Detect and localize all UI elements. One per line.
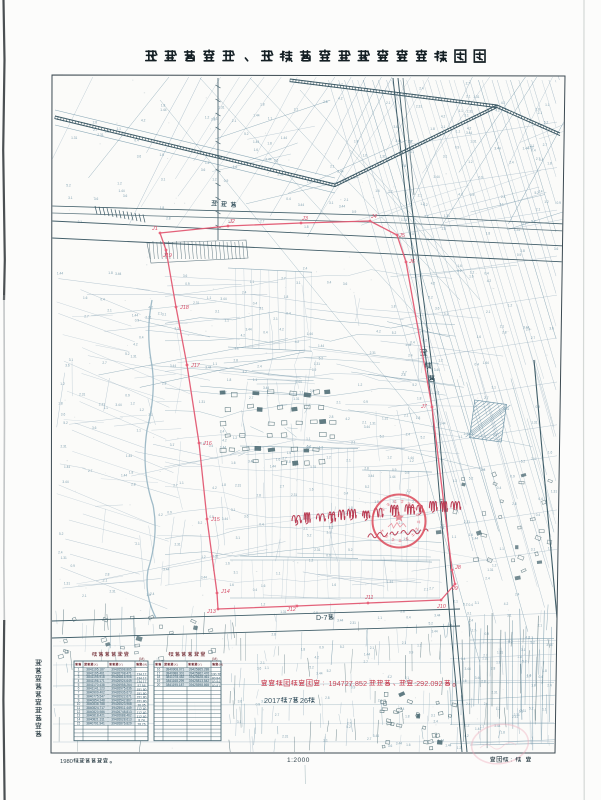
svg-text:J4: J4 — [370, 214, 377, 220]
svg-text:2.1: 2.1 — [232, 119, 237, 123]
svg-text:1.44: 1.44 — [126, 454, 132, 458]
svg-text:0.4: 0.4 — [253, 588, 258, 592]
svg-text:1.6: 1.6 — [230, 583, 235, 587]
svg-text:3.44: 3.44 — [163, 568, 169, 572]
svg-text:0.9: 0.9 — [312, 368, 317, 372]
svg-text:1.2: 1.2 — [201, 555, 206, 559]
svg-text:3.1: 3.1 — [431, 713, 436, 717]
svg-text:2.4: 2.4 — [58, 550, 63, 554]
svg-text:2.4: 2.4 — [408, 354, 413, 358]
svg-text:3840791.941: 3840791.941 — [86, 721, 105, 725]
svg-text:(X): (X) — [174, 663, 178, 667]
svg-text:2.31: 2.31 — [291, 493, 297, 497]
svg-text:2.31: 2.31 — [491, 690, 497, 694]
svg-text:2.1: 2.1 — [82, 594, 87, 598]
svg-text:5.2: 5.2 — [59, 532, 64, 536]
svg-text:1.2: 1.2 — [326, 455, 331, 459]
svg-text:2017: 2017 — [264, 696, 280, 705]
svg-text:5.2: 5.2 — [125, 352, 130, 356]
svg-text:3.44: 3.44 — [432, 630, 438, 634]
svg-text:1980: 1980 — [60, 759, 73, 765]
svg-text:J11: J11 — [364, 595, 373, 601]
svg-text:4.2: 4.2 — [338, 96, 343, 100]
svg-text:J7: J7 — [420, 404, 428, 410]
svg-text:2.8: 2.8 — [131, 482, 136, 486]
svg-text:2.1: 2.1 — [351, 441, 356, 445]
svg-text:2.7: 2.7 — [275, 713, 280, 717]
svg-text:5.2: 5.2 — [469, 477, 474, 481]
svg-text:1.1: 1.1 — [417, 644, 422, 648]
svg-text:2.7: 2.7 — [249, 396, 254, 400]
svg-text:3.6: 3.6 — [549, 326, 554, 330]
svg-text:1.44: 1.44 — [281, 136, 287, 140]
svg-text:3.44: 3.44 — [434, 368, 440, 372]
svg-text:1.44: 1.44 — [445, 744, 451, 748]
svg-text:1.6: 1.6 — [469, 274, 474, 278]
svg-text:1.8: 1.8 — [416, 416, 421, 420]
svg-text:2.31: 2.31 — [314, 548, 320, 552]
svg-text:0.4: 0.4 — [286, 197, 291, 201]
svg-text:1.31: 1.31 — [487, 568, 493, 572]
svg-text:3.44: 3.44 — [373, 734, 379, 738]
svg-text:1.31: 1.31 — [131, 354, 137, 358]
svg-text:5.2: 5.2 — [463, 603, 468, 607]
svg-text:4.2: 4.2 — [279, 328, 284, 332]
svg-text:3.44: 3.44 — [115, 272, 121, 276]
svg-text:3.1: 3.1 — [329, 201, 334, 205]
svg-text:(M): (M) — [212, 657, 217, 661]
svg-text:1.2: 1.2 — [117, 182, 122, 186]
svg-text:5.2: 5.2 — [346, 725, 351, 729]
svg-text:0.9: 0.9 — [256, 703, 261, 707]
svg-text:0.9: 0.9 — [479, 175, 484, 179]
svg-text:1.8: 1.8 — [161, 103, 166, 107]
svg-text:J1: J1 — [151, 226, 158, 232]
svg-text:1.8: 1.8 — [501, 731, 506, 735]
svg-text:2.7: 2.7 — [543, 143, 548, 147]
svg-text:0.9: 0.9 — [135, 318, 140, 322]
svg-text:1.31: 1.31 — [497, 651, 503, 655]
svg-text:(M): (M) — [143, 663, 148, 667]
svg-text:5.2: 5.2 — [327, 669, 332, 673]
svg-text:0.9: 0.9 — [557, 201, 562, 205]
svg-text:4.2: 4.2 — [141, 118, 146, 122]
svg-text:2.4: 2.4 — [515, 593, 520, 597]
svg-text:5.2: 5.2 — [530, 640, 535, 644]
svg-text:3.44: 3.44 — [246, 327, 252, 331]
svg-text:5.2: 5.2 — [531, 220, 536, 224]
svg-text:3.6: 3.6 — [257, 666, 262, 670]
svg-text:2.7: 2.7 — [282, 456, 287, 460]
svg-text:2.31: 2.31 — [110, 589, 116, 593]
svg-text:1.44: 1.44 — [220, 446, 226, 450]
svg-text:1.31: 1.31 — [218, 105, 224, 109]
svg-text:1.1: 1.1 — [253, 378, 258, 382]
svg-text:2.1: 2.1 — [303, 527, 308, 531]
svg-text:2.31: 2.31 — [145, 316, 151, 320]
svg-text:1.1: 1.1 — [265, 666, 270, 670]
svg-text:3.1: 3.1 — [161, 177, 166, 181]
svg-text:2.1: 2.1 — [135, 542, 140, 546]
svg-text:2.31: 2.31 — [79, 393, 85, 397]
svg-text:1.44: 1.44 — [439, 421, 445, 425]
svg-text:2.7: 2.7 — [466, 82, 471, 86]
svg-text:15: 15 — [77, 721, 81, 725]
svg-text:3.6: 3.6 — [394, 125, 399, 129]
svg-text:1.44: 1.44 — [405, 343, 411, 347]
svg-text:1.44: 1.44 — [523, 147, 529, 151]
svg-text:0.9: 0.9 — [364, 400, 369, 404]
svg-text:(Y): (Y) — [198, 663, 202, 667]
svg-text:1.8: 1.8 — [430, 127, 435, 131]
svg-text:5.2: 5.2 — [198, 521, 203, 525]
svg-text:2.7: 2.7 — [472, 629, 477, 633]
svg-text:2.7: 2.7 — [280, 484, 285, 488]
svg-text:3.6: 3.6 — [137, 155, 142, 159]
svg-text:3.6: 3.6 — [183, 274, 188, 278]
svg-text:1.44: 1.44 — [132, 313, 138, 317]
svg-text:3.6: 3.6 — [388, 744, 393, 748]
svg-text:1.1: 1.1 — [213, 362, 218, 366]
svg-text:3.44: 3.44 — [368, 474, 374, 478]
svg-text:2.1: 2.1 — [441, 125, 446, 129]
svg-text:3.44: 3.44 — [248, 460, 254, 464]
svg-text:3.44: 3.44 — [222, 517, 228, 521]
svg-text:2.7: 2.7 — [364, 660, 369, 664]
svg-text:0.9: 0.9 — [125, 393, 130, 397]
svg-text:3.44: 3.44 — [205, 365, 211, 369]
svg-text:1.44: 1.44 — [253, 140, 259, 144]
svg-text:1.2: 1.2 — [424, 215, 429, 219]
svg-text:1.1: 1.1 — [306, 437, 311, 441]
svg-text:J19: J19 — [162, 253, 172, 259]
svg-text:1.6: 1.6 — [548, 451, 553, 455]
svg-text:J10: J10 — [436, 604, 447, 610]
svg-text:3.1: 3.1 — [236, 536, 241, 540]
svg-text:2.8: 2.8 — [502, 331, 507, 335]
svg-text:1.1: 1.1 — [207, 296, 212, 300]
svg-text:1.6: 1.6 — [225, 562, 230, 566]
svg-text:3.44: 3.44 — [337, 619, 343, 623]
svg-text:1.44: 1.44 — [364, 653, 370, 657]
svg-text:7: 7 — [288, 696, 292, 705]
svg-text:0.9: 0.9 — [224, 179, 229, 183]
svg-text:1.8: 1.8 — [108, 271, 113, 275]
svg-text:0.4: 0.4 — [286, 312, 291, 316]
svg-text:1.31: 1.31 — [280, 610, 286, 614]
svg-text:J15: J15 — [210, 517, 221, 523]
svg-text:2.1: 2.1 — [103, 578, 108, 582]
svg-text:5.2: 5.2 — [66, 183, 71, 187]
svg-text:2.1: 2.1 — [273, 317, 278, 321]
svg-text:1.8: 1.8 — [58, 402, 63, 406]
svg-text:2.4: 2.4 — [466, 702, 471, 706]
svg-text:4.2: 4.2 — [158, 513, 163, 517]
svg-text:3.44: 3.44 — [298, 203, 304, 207]
svg-text:1.8: 1.8 — [441, 227, 446, 231]
svg-text:2.1: 2.1 — [386, 101, 391, 105]
svg-text:1.8: 1.8 — [547, 162, 552, 166]
svg-text:3.1: 3.1 — [323, 739, 328, 743]
svg-text:1.2: 1.2 — [508, 303, 513, 307]
svg-text:1.1: 1.1 — [299, 390, 304, 394]
svg-text:2.7: 2.7 — [84, 315, 89, 319]
svg-text:3.1: 3.1 — [443, 154, 448, 158]
svg-text:1.1: 1.1 — [456, 130, 461, 134]
svg-text:3.6: 3.6 — [123, 194, 128, 198]
svg-text:1.8: 1.8 — [301, 647, 306, 651]
svg-text:1.8: 1.8 — [284, 295, 289, 299]
svg-text:2.8: 2.8 — [257, 494, 262, 498]
svg-text:0.9: 0.9 — [517, 253, 522, 257]
svg-text:4.2: 4.2 — [504, 602, 509, 606]
svg-text:1.2: 1.2 — [457, 746, 462, 750]
svg-text:1.2: 1.2 — [212, 177, 217, 181]
svg-text:2.8: 2.8 — [325, 696, 330, 700]
svg-text:1.6: 1.6 — [231, 461, 236, 465]
svg-text:3.44: 3.44 — [546, 643, 552, 647]
svg-text:2.8: 2.8 — [166, 216, 171, 220]
svg-text:(X): (X) — [94, 663, 98, 667]
svg-text:2.1: 2.1 — [213, 117, 218, 121]
svg-text:0.4: 0.4 — [531, 148, 536, 152]
svg-text:3.1: 3.1 — [215, 310, 220, 314]
svg-text:1.2: 1.2 — [468, 160, 473, 164]
svg-text:J14: J14 — [220, 589, 230, 595]
svg-text:1.8: 1.8 — [496, 660, 501, 664]
svg-text:2.1: 2.1 — [536, 207, 541, 211]
svg-text:(M): (M) — [219, 663, 224, 667]
svg-text:1.44: 1.44 — [64, 465, 70, 469]
svg-text:(M): (M) — [139, 657, 144, 661]
svg-text:1.1: 1.1 — [276, 572, 281, 576]
svg-text:1.44: 1.44 — [318, 344, 324, 348]
svg-text:0.4: 0.4 — [484, 272, 489, 276]
svg-text:2.4: 2.4 — [434, 720, 439, 724]
svg-text:2.8: 2.8 — [162, 382, 167, 386]
svg-text:1.31: 1.31 — [71, 136, 77, 140]
svg-text:D-7: D-7 — [316, 614, 327, 622]
svg-text:J17: J17 — [190, 363, 201, 369]
svg-text:0.9: 0.9 — [185, 282, 190, 286]
svg-text:2.8: 2.8 — [329, 415, 334, 419]
svg-text:3.44: 3.44 — [364, 425, 370, 429]
svg-text:0.4: 0.4 — [497, 486, 502, 490]
svg-text:80.81: 80.81 — [212, 684, 220, 688]
svg-text:2.7: 2.7 — [536, 157, 541, 161]
svg-text:5.2: 5.2 — [421, 436, 426, 440]
svg-text:0.4: 0.4 — [536, 513, 541, 517]
svg-text:3841195.187: 3841195.187 — [166, 683, 185, 687]
svg-text:1.1: 1.1 — [458, 435, 463, 439]
svg-text:2.8: 2.8 — [491, 667, 496, 671]
svg-text:2.8: 2.8 — [234, 358, 239, 362]
svg-text:2.8: 2.8 — [272, 632, 277, 636]
svg-text:2.7: 2.7 — [102, 361, 107, 365]
svg-text:1.44: 1.44 — [307, 332, 313, 336]
svg-text:2.31: 2.31 — [520, 709, 526, 713]
svg-text:2.1: 2.1 — [538, 111, 543, 115]
svg-text:1.6: 1.6 — [160, 153, 165, 157]
svg-text:1.31: 1.31 — [61, 556, 67, 560]
svg-text:4.2: 4.2 — [212, 486, 217, 490]
svg-text:1.6: 1.6 — [83, 296, 88, 300]
svg-text:1.1: 1.1 — [459, 109, 464, 113]
svg-text:2.1: 2.1 — [454, 600, 459, 604]
svg-text:3.44: 3.44 — [263, 386, 269, 390]
svg-text:2.1: 2.1 — [107, 308, 112, 312]
svg-text:0.4: 0.4 — [539, 675, 544, 679]
svg-text:1.8: 1.8 — [267, 141, 272, 145]
svg-text:0.9: 0.9 — [167, 510, 172, 514]
svg-text:2.1: 2.1 — [294, 108, 299, 112]
svg-text:0.9: 0.9 — [470, 193, 475, 197]
svg-text:2.1: 2.1 — [362, 420, 367, 424]
svg-text:4.2: 4.2 — [133, 342, 138, 346]
svg-text:3.1: 3.1 — [327, 530, 332, 534]
svg-text:0.9: 0.9 — [409, 650, 414, 654]
svg-text:4.2: 4.2 — [295, 340, 300, 344]
svg-text:2.8: 2.8 — [401, 373, 406, 377]
svg-text:2.8: 2.8 — [481, 679, 486, 683]
svg-text:1.2: 1.2 — [358, 383, 363, 387]
svg-text:1.44: 1.44 — [472, 537, 478, 541]
svg-text:2.31: 2.31 — [350, 621, 356, 625]
svg-text:2.7: 2.7 — [173, 484, 178, 488]
svg-text:4.2: 4.2 — [501, 101, 506, 105]
svg-text:2.8: 2.8 — [323, 100, 328, 104]
svg-text:3.44: 3.44 — [434, 614, 440, 618]
svg-text:4.2: 4.2 — [464, 734, 469, 738]
svg-text:1.1: 1.1 — [545, 103, 550, 107]
svg-text:2.4: 2.4 — [501, 195, 506, 199]
svg-text:1.31: 1.31 — [401, 218, 407, 222]
svg-text:3.6: 3.6 — [94, 197, 99, 201]
svg-text:1.1: 1.1 — [250, 280, 255, 284]
svg-text:2.4: 2.4 — [469, 618, 474, 622]
svg-text:3.44: 3.44 — [115, 403, 121, 407]
svg-text:3.6: 3.6 — [65, 363, 70, 367]
svg-text:1.8: 1.8 — [531, 684, 536, 688]
svg-text:4.2: 4.2 — [222, 438, 227, 442]
svg-text:1.2: 1.2 — [233, 436, 238, 440]
svg-text:26: 26 — [300, 696, 308, 705]
svg-text:1.2: 1.2 — [492, 564, 497, 568]
svg-text:3.1: 3.1 — [467, 611, 472, 615]
svg-text:2.7: 2.7 — [429, 586, 434, 590]
svg-text:0.9: 0.9 — [319, 645, 324, 649]
svg-text:1.2: 1.2 — [438, 358, 443, 362]
svg-text:1.6: 1.6 — [332, 583, 337, 587]
svg-text:5.2: 5.2 — [508, 640, 513, 644]
svg-text:2.1: 2.1 — [405, 676, 410, 680]
svg-text:1.2: 1.2 — [387, 455, 392, 459]
svg-text:1.1: 1.1 — [117, 127, 122, 131]
svg-text:5.2: 5.2 — [412, 383, 417, 387]
svg-text:1.31: 1.31 — [551, 490, 557, 494]
svg-text:3.6: 3.6 — [274, 159, 279, 163]
svg-text:1.31: 1.31 — [314, 362, 320, 366]
svg-text:2.31: 2.31 — [212, 554, 218, 558]
svg-text:3.44: 3.44 — [316, 671, 322, 675]
svg-text:0.4: 0.4 — [327, 280, 332, 284]
svg-text:5.2: 5.2 — [380, 435, 385, 439]
svg-text:1.8: 1.8 — [227, 378, 232, 382]
svg-text:3.1: 3.1 — [69, 358, 74, 362]
svg-text:3.1: 3.1 — [237, 720, 242, 724]
svg-text:1.44: 1.44 — [408, 456, 414, 460]
svg-text:2.1: 2.1 — [466, 95, 471, 99]
svg-text:5.2: 5.2 — [529, 707, 534, 711]
svg-text:1.8: 1.8 — [304, 225, 309, 229]
svg-text:0.4: 0.4 — [139, 336, 144, 340]
svg-text:3.44: 3.44 — [265, 157, 271, 161]
svg-text:1.8: 1.8 — [222, 483, 227, 487]
svg-text:1.2: 1.2 — [453, 479, 458, 483]
svg-text:2.31: 2.31 — [282, 735, 288, 739]
svg-text:0.9: 0.9 — [510, 475, 515, 479]
svg-text:0.9: 0.9 — [326, 554, 331, 558]
svg-text:2.7: 2.7 — [367, 737, 372, 741]
svg-text:20: 20 — [157, 683, 161, 687]
svg-text:3.1: 3.1 — [162, 313, 167, 317]
svg-text:2.7: 2.7 — [347, 721, 352, 725]
svg-text:1.31: 1.31 — [199, 400, 205, 404]
svg-text:0.4: 0.4 — [475, 362, 480, 366]
svg-text:1.6: 1.6 — [276, 457, 281, 461]
svg-text:5.2: 5.2 — [309, 666, 314, 670]
svg-text:2.31: 2.31 — [193, 301, 199, 305]
svg-text:2.4: 2.4 — [220, 429, 225, 433]
svg-text:3.1: 3.1 — [531, 548, 536, 552]
svg-text:3.44: 3.44 — [396, 741, 402, 745]
svg-text:2.1: 2.1 — [346, 459, 351, 463]
svg-text:J13: J13 — [206, 609, 217, 615]
svg-text:3.1: 3.1 — [68, 196, 73, 200]
svg-text:1.1: 1.1 — [137, 429, 142, 433]
svg-text:0.4: 0.4 — [263, 331, 268, 335]
svg-text:1.31: 1.31 — [293, 397, 299, 401]
svg-text:2.8: 2.8 — [408, 139, 413, 143]
svg-text:1.1: 1.1 — [268, 116, 273, 120]
svg-text:1.6: 1.6 — [309, 488, 314, 492]
svg-text:1.2: 1.2 — [465, 724, 470, 728]
svg-text:3.44: 3.44 — [62, 480, 68, 484]
svg-text:1.8: 1.8 — [417, 397, 422, 401]
svg-text:0.9: 0.9 — [485, 632, 490, 636]
svg-text:1:2000: 1:2000 — [287, 757, 310, 764]
svg-text:5.2: 5.2 — [340, 645, 345, 649]
svg-text:2.1: 2.1 — [484, 702, 489, 706]
svg-text:0.9: 0.9 — [71, 564, 76, 568]
svg-text:3.44: 3.44 — [201, 575, 207, 579]
svg-text:5.2: 5.2 — [244, 132, 249, 136]
svg-text:4.2: 4.2 — [431, 282, 436, 286]
svg-text:J6: J6 — [408, 259, 416, 265]
svg-text:J9: J9 — [451, 586, 458, 592]
svg-text:5.2: 5.2 — [521, 459, 526, 463]
svg-text:3.44: 3.44 — [339, 204, 345, 208]
svg-text:1.44: 1.44 — [160, 108, 166, 112]
svg-text:4.2: 4.2 — [345, 417, 350, 421]
svg-text:2.1: 2.1 — [78, 220, 83, 224]
svg-text:3.44: 3.44 — [337, 170, 343, 174]
svg-text:0.4: 0.4 — [253, 302, 258, 306]
svg-text:1.31: 1.31 — [370, 422, 376, 426]
svg-text:2.7: 2.7 — [531, 336, 536, 340]
svg-text:3.1: 3.1 — [296, 281, 301, 285]
svg-text:1.44: 1.44 — [295, 380, 301, 384]
